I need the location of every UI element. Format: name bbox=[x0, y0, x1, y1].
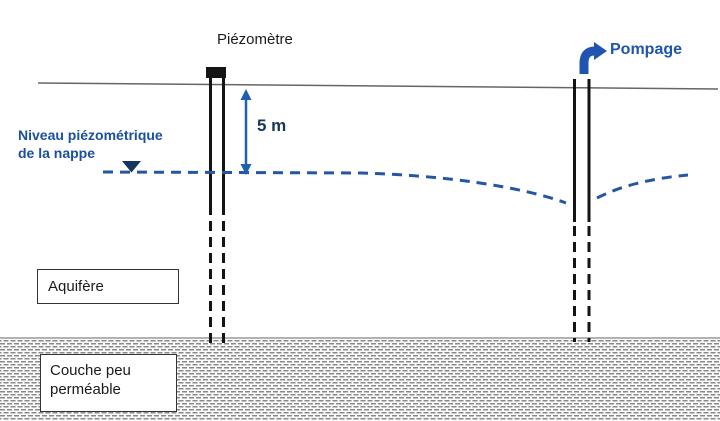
water-table-dashed-line-right bbox=[597, 175, 688, 198]
hydrogeology-diagram: Piézomètre Pompage Niveau piézométrique … bbox=[0, 0, 720, 421]
aquifer-label-box: Aquifère bbox=[37, 269, 179, 304]
pump-flow-arrow-head-icon bbox=[594, 42, 607, 60]
confining-layer-label-line2: perméable bbox=[50, 380, 176, 399]
water-table-label: Niveau piézométrique de la nappe bbox=[18, 126, 163, 162]
piezometer-label: Piézomètre bbox=[217, 31, 293, 48]
water-table-dashed-line-left bbox=[103, 172, 566, 203]
ground-surface-line bbox=[38, 83, 718, 89]
water-table-label-line2: de la nappe bbox=[18, 144, 163, 162]
water-table-label-line1: Niveau piézométrique bbox=[18, 126, 163, 144]
depth-arrow-head-top-icon bbox=[241, 89, 252, 100]
aquifer-label: Aquifère bbox=[48, 278, 104, 295]
piezometer-cap bbox=[206, 67, 226, 78]
confining-layer-label-box: Couche peu perméable bbox=[40, 354, 177, 412]
pumping-label: Pompage bbox=[610, 41, 682, 59]
depth-value-label: 5 m bbox=[257, 116, 286, 136]
confining-layer-label-line1: Couche peu bbox=[50, 361, 176, 380]
